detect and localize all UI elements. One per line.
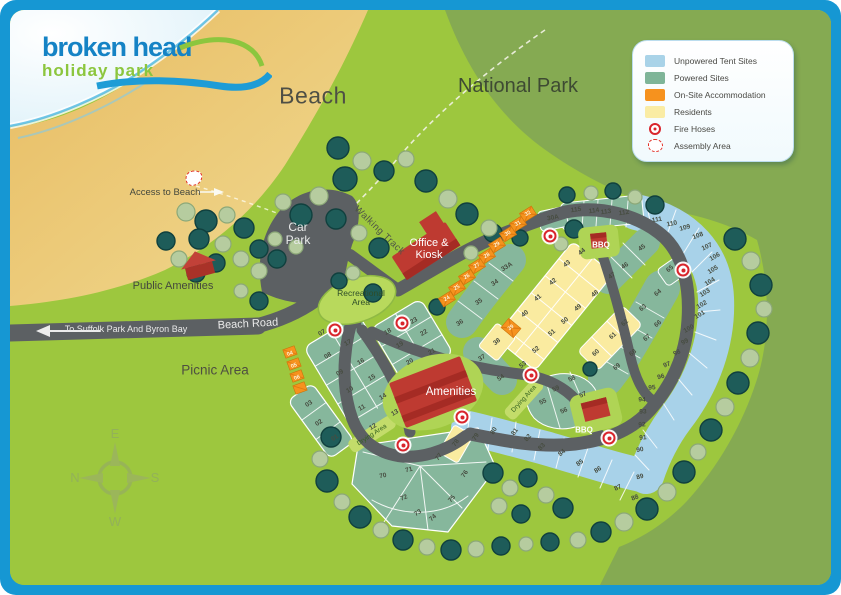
access-to-beach-label: Access to Beach [130, 188, 201, 198]
legend-item: Unpowered Tent Sites [645, 52, 783, 69]
beach-label: Beach [279, 84, 347, 109]
legend-label: Unpowered Tent Sites [674, 56, 757, 66]
legend-label: On-Site Accommodation [674, 90, 766, 100]
holiday-park-map: 0102030405060708091011121314151617181920… [10, 10, 831, 585]
legend-swatch [645, 106, 665, 118]
amenities-label: Amenities [426, 386, 477, 398]
national-park-label: National Park [458, 76, 578, 98]
assembly-area-icon [648, 139, 663, 152]
legend-label: Assembly Area [674, 141, 731, 151]
legend-item: Fire Hoses [645, 120, 783, 137]
legend-swatch [645, 55, 665, 67]
office-kiosk-label: Office & Kiosk [404, 238, 454, 262]
car-park-label: Car Park [277, 221, 319, 247]
beach-road-label: Beach Road [217, 317, 278, 332]
compass-east-letter: E [111, 427, 120, 441]
map-legend: Unpowered Tent SitesPowered SitesOn-Site… [632, 40, 794, 162]
legend-swatch [645, 89, 665, 101]
compass-south-letter: S [151, 471, 160, 485]
logo-tagline: holiday park [42, 62, 262, 79]
bbq-south-label: BBQ [575, 427, 593, 436]
legend-swatch [645, 72, 665, 84]
compass-north-letter: N [70, 471, 79, 485]
logo-name: broken head [42, 34, 262, 61]
picnic-area-label: Picnic Area [181, 364, 249, 379]
suffolk-park-direction-label: To Suffolk Park And Byron Bay [65, 325, 187, 335]
public-amenities-label: Public Amenities [133, 281, 214, 293]
drying-area-east-label: Drying Area [510, 384, 538, 414]
legend-label: Fire Hoses [674, 124, 715, 134]
legend-label: Powered Sites [674, 73, 729, 83]
walking-track-label: Walking Track [352, 204, 406, 257]
recreational-area-label: Recreational Area [331, 289, 391, 307]
bbq-north-label: BBQ [592, 242, 610, 251]
park-logo: broken head holiday park [42, 34, 262, 114]
legend-item: Powered Sites [645, 69, 783, 86]
map-frame: 0102030405060708091011121314151617181920… [0, 0, 841, 595]
legend-label: Residents [674, 107, 712, 117]
compass-west-letter: W [109, 515, 121, 529]
legend-item: Residents [645, 103, 783, 120]
legend-item: On-Site Accommodation [645, 86, 783, 103]
drying-area-west-label: Drying Area [356, 423, 388, 447]
fire-hose-icon [649, 123, 661, 135]
legend-item: Assembly Area [645, 137, 783, 154]
